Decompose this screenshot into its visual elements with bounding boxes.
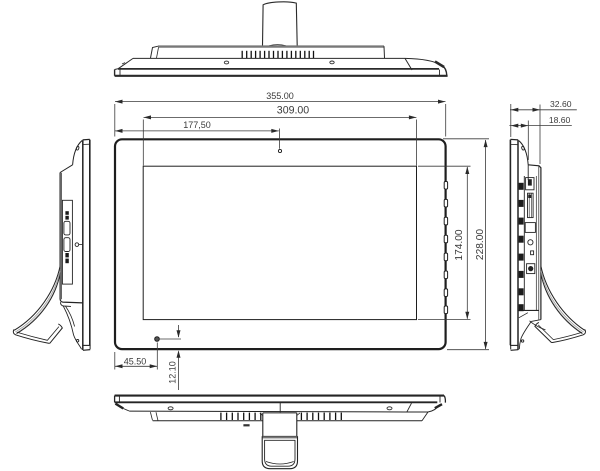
svg-text:228.00: 228.00 [475, 229, 486, 260]
svg-text:12.10: 12.10 [168, 361, 178, 384]
svg-text:355.00: 355.00 [266, 91, 294, 101]
svg-text:18.60: 18.60 [549, 115, 571, 125]
svg-text:174.00: 174.00 [454, 229, 465, 260]
svg-text:32.60: 32.60 [550, 99, 572, 109]
svg-text:45.50: 45.50 [124, 356, 147, 366]
svg-text:309.00: 309.00 [277, 104, 310, 116]
svg-text:177,50: 177,50 [183, 120, 211, 130]
